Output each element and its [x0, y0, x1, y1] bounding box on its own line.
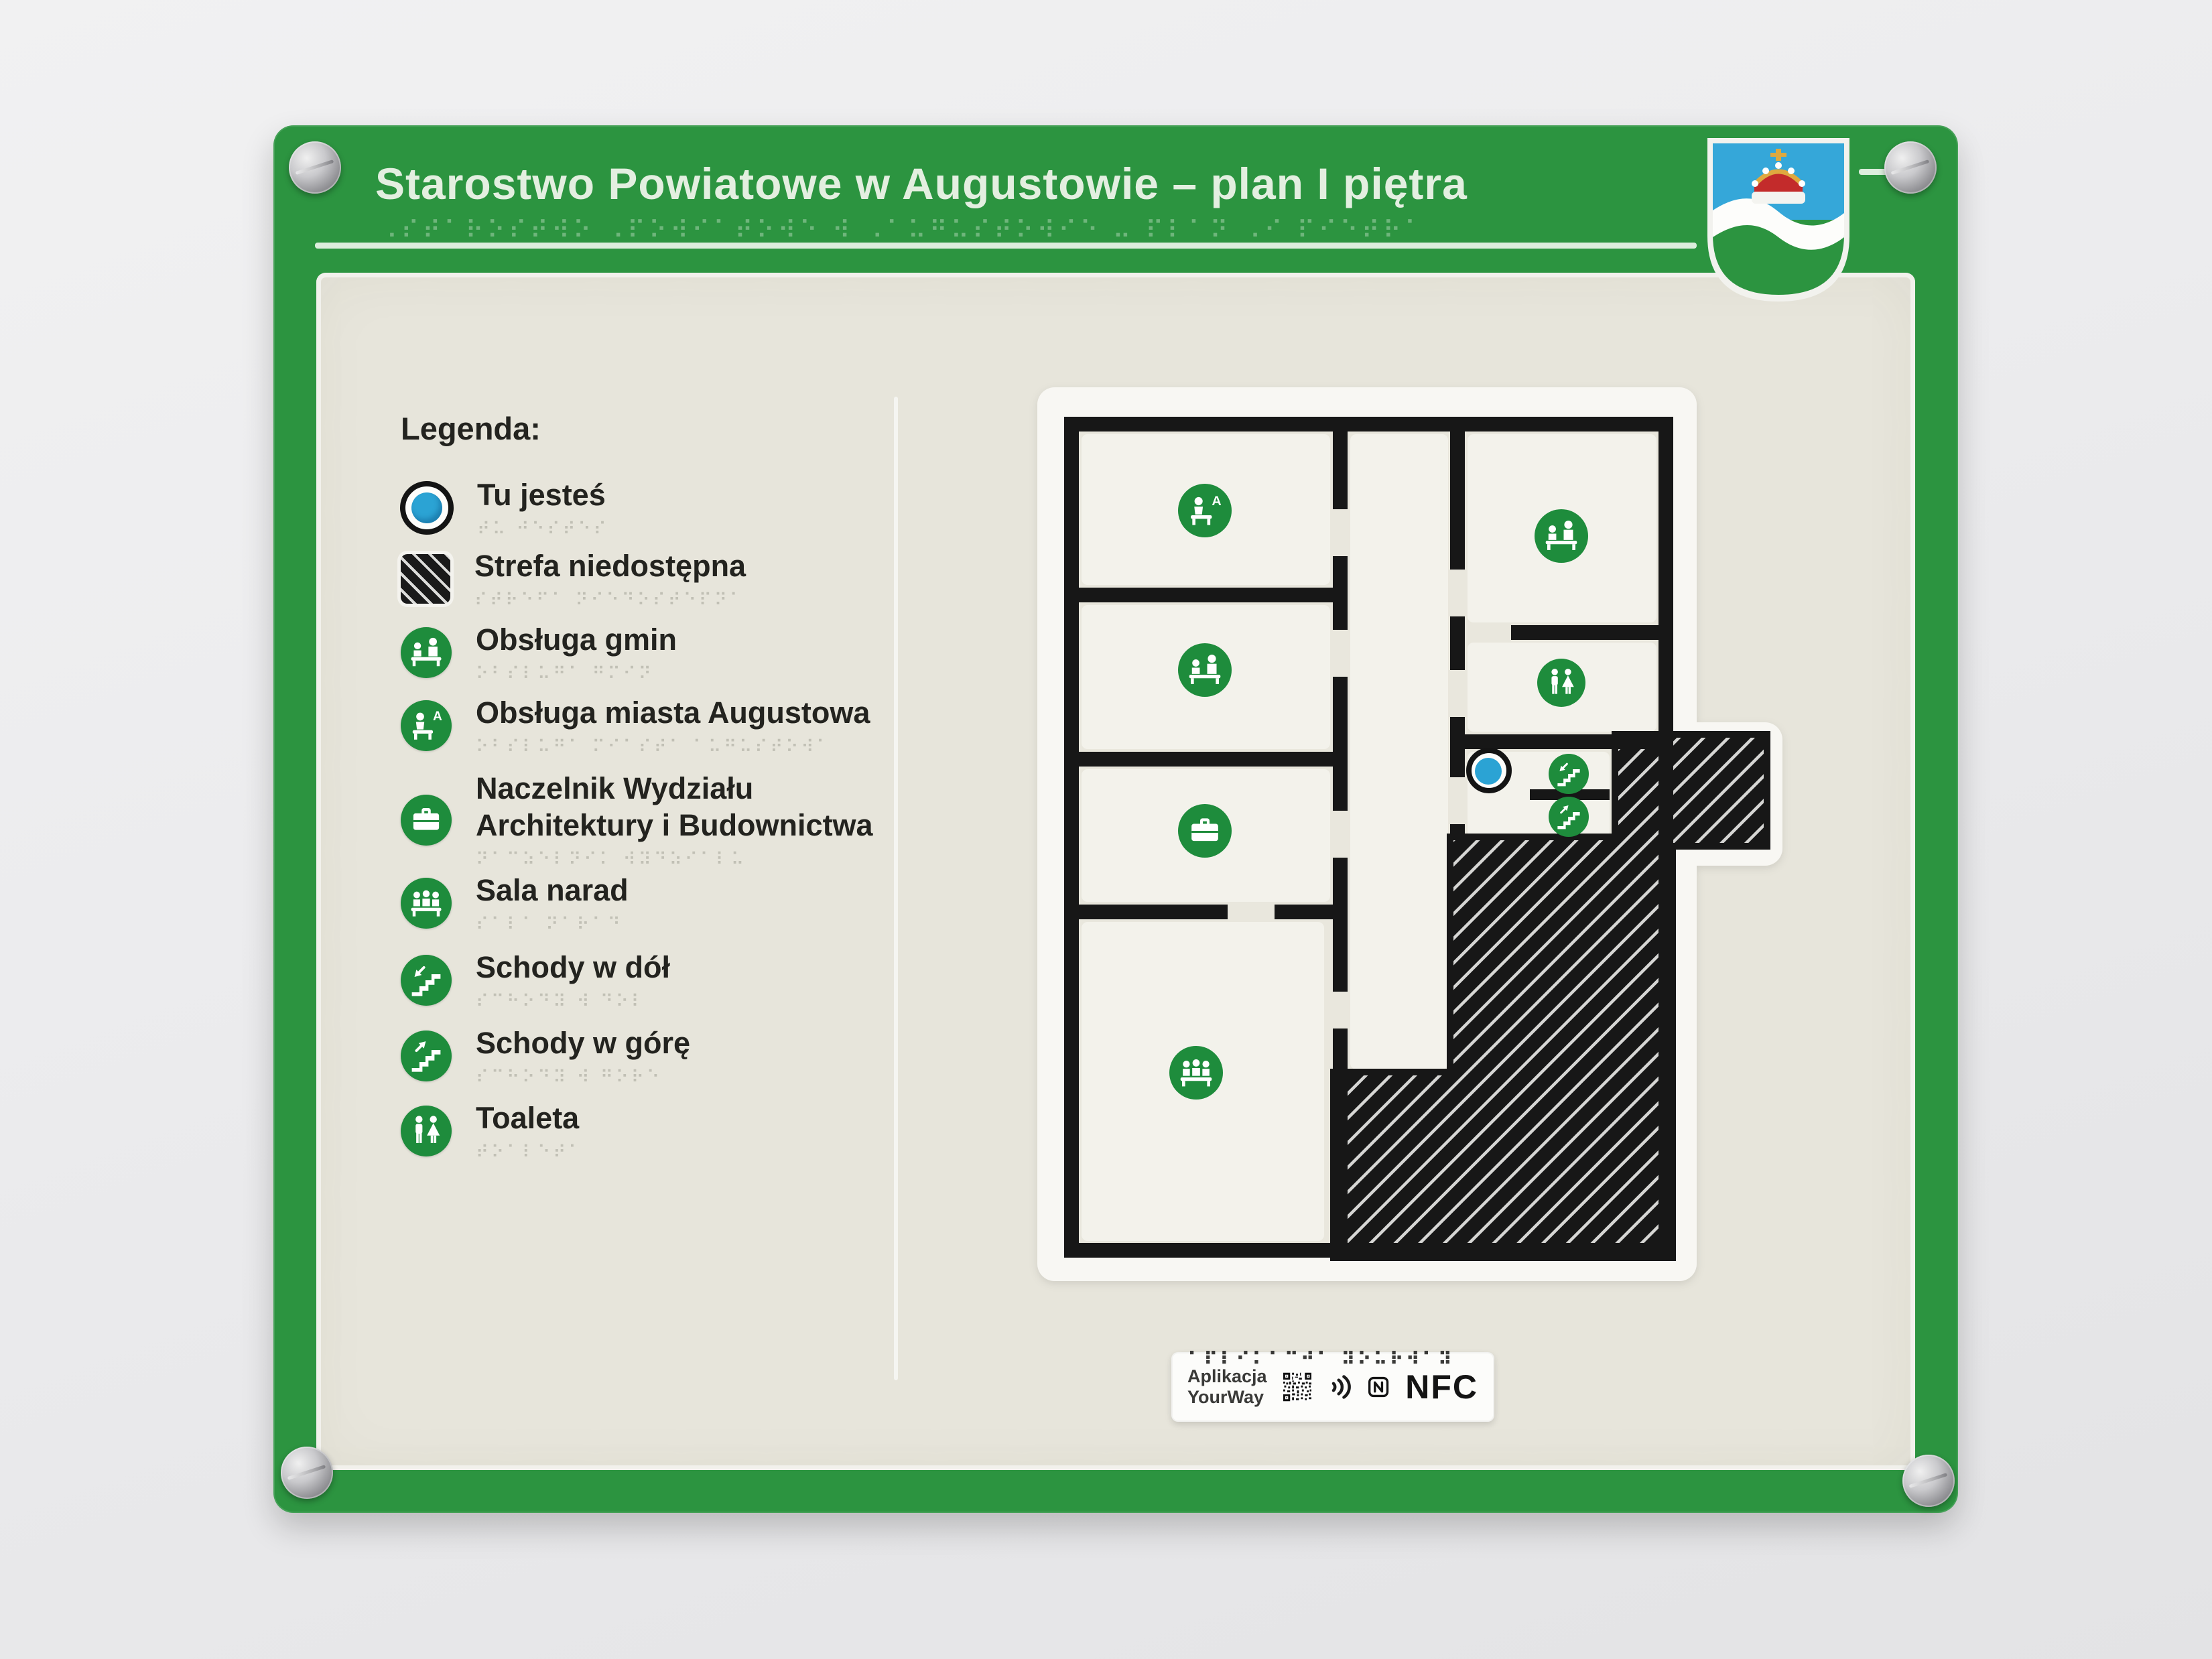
municipal-service-icon: [1535, 509, 1588, 563]
app-tag-plate: ⠁⠏⠇⠊⠅⠁⠉⠚⠁ ⠽⠕⠥⠗⠺⠁⠽ Aplikacja YourWay NFC: [1171, 1352, 1494, 1422]
legend-item-city-service: Obsługa miasta Augustowa ⠕⠃⠎⠇⠥⠛⠁ ⠍⠊⠁⠎⠞⠁ …: [401, 695, 870, 757]
legend-label: Schody w górę: [476, 1025, 690, 1062]
municipal-service-icon: [401, 627, 452, 678]
legend-braille: ⠝⠁⠉⠵⠑⠇⠝⠊⠅ ⠺⠽⠙⠵⠊⠁⠇⠥: [476, 850, 938, 870]
header-separator-line: [315, 243, 1697, 249]
legend-item-inaccessible: Strefa niedostępna ⠎⠞⠗⠑⠋⠁ ⠝⠊⠑⠙⠕⠎⠞⠑⠏⠝⠁: [401, 548, 746, 610]
legend-braille: ⠎⠉⠓⠕⠙⠽ ⠺ ⠙⠕⠇: [476, 992, 670, 1012]
stairs-down-icon: [401, 955, 452, 1006]
legend-label: Naczelnik Wydziału Architektury i Budown…: [476, 771, 938, 844]
legend-label: Strefa niedostępna: [474, 548, 746, 585]
legend-label: Obsługa gmin: [476, 622, 677, 659]
standoff-screw-top-right: [1884, 141, 1937, 194]
app-name: ⠁⠏⠇⠊⠅⠁⠉⠚⠁ ⠽⠕⠥⠗⠺⠁⠽ Aplikacja YourWay: [1187, 1366, 1267, 1408]
corridor: [1350, 434, 1448, 1069]
legend-item-department-head: Naczelnik Wydziału Architektury i Budown…: [401, 771, 938, 870]
legend-label: Toaleta: [476, 1100, 584, 1137]
nfc-label: NFC: [1405, 1368, 1478, 1406]
legend-label: Schody w dół: [476, 949, 670, 986]
you-are-here-marker: [1469, 750, 1509, 791]
title-braille: ⠠⠎⠞⠁⠗⠕⠎⠞⠺⠕ ⠠⠏⠕⠺⠊⠁⠞⠕⠺⠑ ⠺ ⠠⠁⠥⠛⠥⠎⠞⠕⠺⠊⠑ ⠤ ⠏⠇…: [379, 216, 1426, 245]
qr-code-icon: [1283, 1365, 1311, 1409]
legend-braille: ⠎⠞⠗⠑⠋⠁ ⠝⠊⠑⠙⠕⠎⠞⠑⠏⠝⠁: [474, 590, 746, 610]
floor-plan: [1005, 362, 1816, 1313]
stairs-up-icon: [1549, 797, 1589, 837]
legend-item-stairs-down: Schody w dół ⠎⠉⠓⠕⠙⠽ ⠺ ⠙⠕⠇: [401, 949, 670, 1012]
municipal-service-icon: [1178, 643, 1232, 697]
legend-label: Sala narad: [476, 872, 629, 909]
coat-of-arms: [1701, 133, 1856, 306]
app-name-line2: YourWay: [1187, 1387, 1267, 1408]
meeting-room-icon: [1169, 1046, 1223, 1100]
standoff-screw-bottom-right: [1902, 1455, 1955, 1507]
inaccessible-zone-icon: [401, 554, 450, 604]
toilet-icon: [401, 1106, 452, 1156]
legend-braille: ⠕⠃⠎⠇⠥⠛⠁ ⠛⠍⠊⠝: [476, 664, 677, 684]
department-head-icon: [1178, 804, 1232, 858]
legend-braille: ⠎⠁⠇⠁ ⠝⠁⠗⠁⠙: [476, 915, 629, 935]
app-braille: ⠁⠏⠇⠊⠅⠁⠉⠚⠁ ⠽⠕⠥⠗⠺⠁⠽: [1187, 1349, 1454, 1370]
content-divider-line: [894, 397, 898, 1380]
stairs-down-icon: [1549, 754, 1589, 794]
legend-item-municipal-service: Obsługa gmin ⠕⠃⠎⠇⠥⠛⠁ ⠛⠍⠊⠝: [401, 622, 677, 684]
legend-item-stairs-up: Schody w górę ⠎⠉⠓⠕⠙⠽ ⠺ ⠛⠕⠗⠑: [401, 1025, 690, 1087]
legend-label: Obsługa miasta Augustowa: [476, 695, 870, 732]
stairs-up-icon: [401, 1031, 452, 1081]
standoff-screw-top-left: [289, 141, 341, 194]
department-head-icon: [401, 795, 452, 846]
city-service-icon: [1178, 484, 1232, 537]
nfc-mark-icon: [1368, 1370, 1389, 1404]
page-title: Starostwo Powiatowe w Augustowie – plan …: [375, 158, 1468, 209]
you-are-here-icon: [400, 481, 454, 535]
toilet-icon: [1537, 659, 1585, 707]
legend-item-meeting-room: Sala narad ⠎⠁⠇⠁ ⠝⠁⠗⠁⠙: [401, 872, 629, 935]
legend-braille: ⠞⠕⠁⠇⠑⠞⠁: [476, 1142, 584, 1163]
legend-label: Tu jesteś: [477, 477, 609, 514]
standoff-screw-bottom-left: [281, 1447, 333, 1499]
legend-heading: Legenda:: [401, 410, 541, 447]
city-service-icon: [401, 700, 452, 751]
legend-braille: ⠎⠉⠓⠕⠙⠽ ⠺ ⠛⠕⠗⠑: [476, 1067, 690, 1087]
nfc-waves-icon: [1327, 1366, 1352, 1408]
legend-item-you-are-here: Tu jesteś ⠞⠥ ⠚⠑⠎⠞⠑⠎: [401, 477, 609, 539]
legend-braille: ⠕⠃⠎⠇⠥⠛⠁ ⠍⠊⠁⠎⠞⠁ ⠁⠥⠛⠥⠎⠞⠕⠺⠁: [476, 737, 870, 757]
meeting-room-icon: [401, 878, 452, 929]
legend-item-toilet: Toaleta ⠞⠕⠁⠇⠑⠞⠁: [401, 1100, 584, 1163]
legend-braille: ⠞⠥ ⠚⠑⠎⠞⠑⠎: [477, 519, 609, 539]
